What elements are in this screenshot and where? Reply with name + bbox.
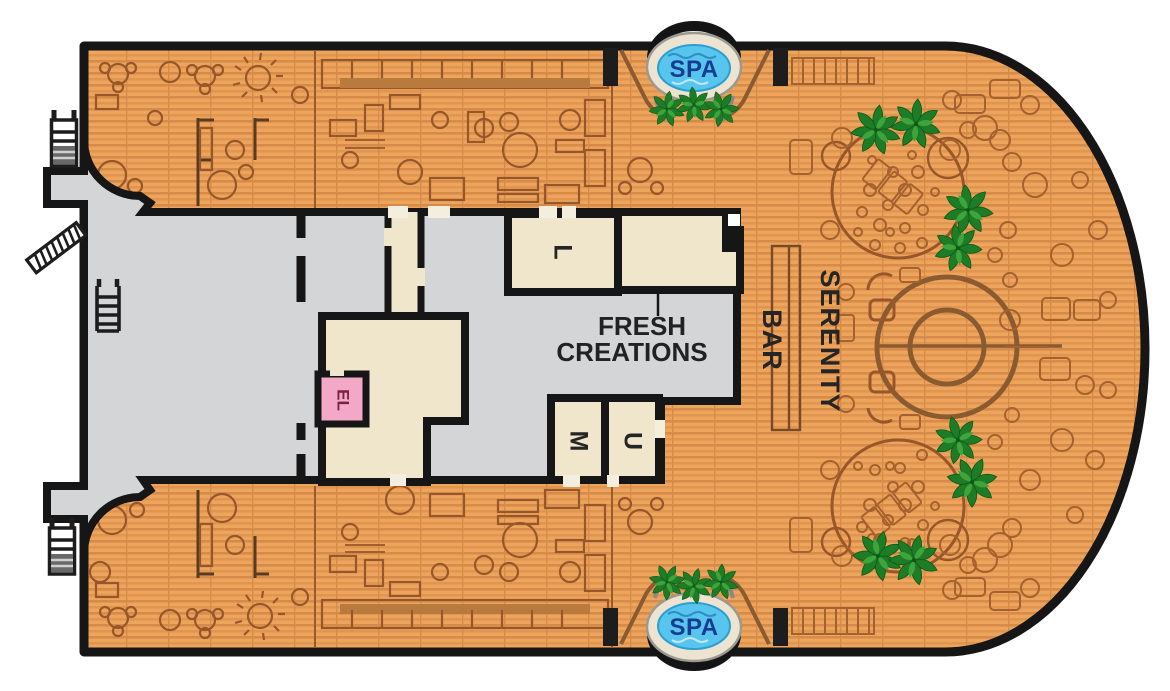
- svg-text:M: M: [564, 431, 592, 452]
- svg-text:SERENITY: SERENITY: [815, 269, 845, 412]
- svg-text:EL: EL: [334, 389, 353, 411]
- svg-text:SPA: SPA: [669, 614, 718, 641]
- svg-text:BAR: BAR: [757, 309, 787, 371]
- svg-text:SPA: SPA: [669, 56, 718, 83]
- svg-text:CREATIONS: CREATIONS: [556, 337, 707, 367]
- svg-text:L: L: [548, 244, 576, 259]
- svg-text:U: U: [618, 432, 646, 450]
